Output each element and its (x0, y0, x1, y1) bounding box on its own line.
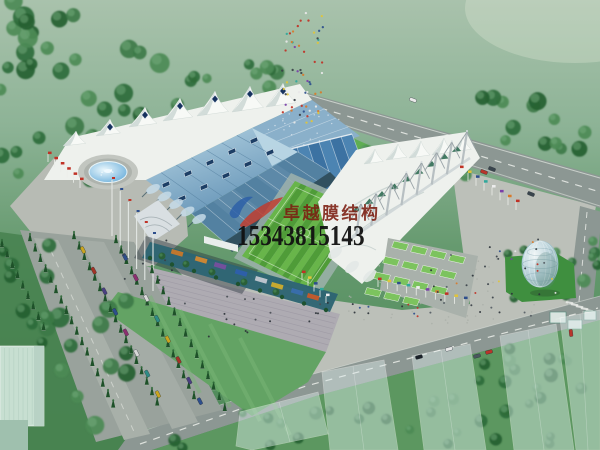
stadium-aerial-rendering: 卓越膜结构 15343815143 (0, 0, 600, 450)
fountain-pond (78, 155, 138, 190)
scene-canvas (0, 0, 600, 450)
